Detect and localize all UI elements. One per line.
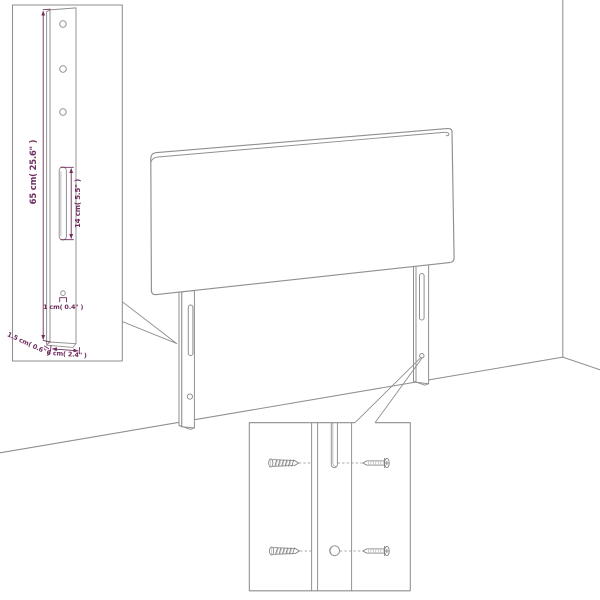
- assembly-diagram-page: 65 cm( 25.6" ) 14 cm( 5.5" ) 1 cm( 0.4" …: [0, 0, 600, 600]
- callout-lines-left-leg: [122, 302, 176, 344]
- headboard-left-leg: [179, 291, 194, 430]
- hole-diameter-label: 1 cm( 0.4" ): [43, 303, 83, 311]
- leg-height-label: 65 cm( 25.6" ): [28, 139, 38, 204]
- assembly-diagram-canvas: 65 cm( 25.6" ) 14 cm( 5.5" ) 1 cm( 0.4" …: [0, 0, 600, 600]
- screw-detail-inset-box: [249, 423, 410, 591]
- headboard-panel: [151, 129, 454, 295]
- slot-length-label: 14 cm( 5.5" ): [74, 179, 82, 228]
- leg-detail-inset: 65 cm( 25.6" ) 14 cm( 5.5" ) 1 cm( 0.4" …: [6, 5, 122, 361]
- callout-lines-right-leg: [355, 358, 422, 423]
- screw-detail-inset: [249, 423, 410, 591]
- floor-wall-edge-right: [563, 357, 600, 370]
- headboard-drawing: [151, 129, 454, 430]
